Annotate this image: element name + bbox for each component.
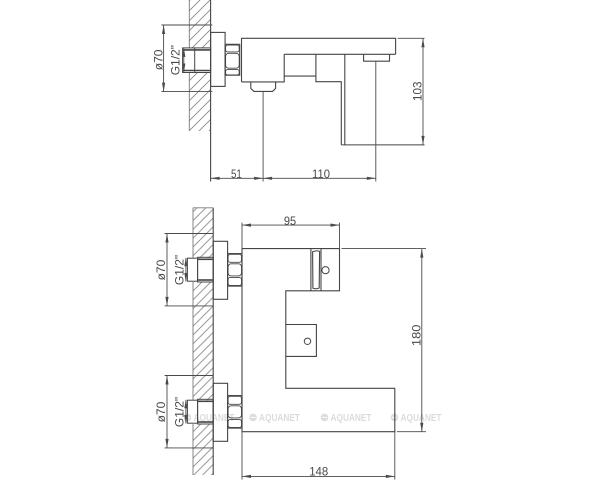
- svg-text:110: 110: [312, 167, 330, 181]
- svg-text:AQUANET: AQUANET: [259, 413, 301, 424]
- svg-text:G1/2": G1/2": [168, 45, 182, 75]
- svg-text:51: 51: [231, 167, 242, 181]
- svg-text:95: 95: [284, 214, 296, 228]
- svg-text:AQUANET: AQUANET: [331, 413, 373, 424]
- svg-text:ø70: ø70: [152, 49, 166, 70]
- svg-text:103: 103: [410, 81, 424, 101]
- svg-text:ø70: ø70: [154, 259, 168, 280]
- svg-text:180: 180: [409, 324, 423, 346]
- svg-text:148: 148: [309, 465, 328, 479]
- svg-text:AQUANET: AQUANET: [401, 413, 443, 424]
- svg-text:G1/2": G1/2": [173, 397, 187, 427]
- svg-text:G1/2": G1/2": [173, 255, 187, 285]
- svg-text:ø70: ø70: [154, 401, 168, 422]
